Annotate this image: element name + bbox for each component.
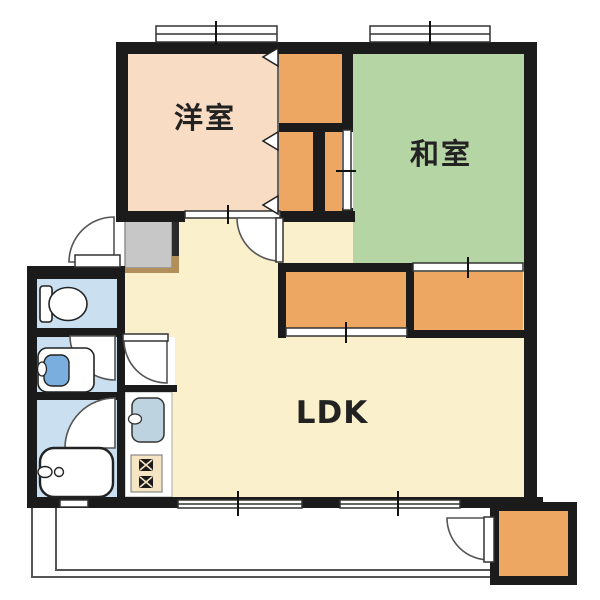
japanese-room-label: 和室 [410, 137, 472, 171]
entrance-area [125, 219, 179, 273]
oshiire-left [285, 272, 407, 328]
entrance-mat [125, 219, 172, 268]
stove-burner-icon [139, 459, 153, 471]
balcony-fence-inner [56, 508, 494, 570]
washbasin-bowl [44, 355, 69, 386]
kitchen-sink-icon [129, 398, 165, 442]
sliding-western-entry [185, 211, 280, 218]
storage-box [490, 502, 577, 585]
wall-western-bottom-left [116, 211, 185, 222]
wall-left-lower [27, 266, 37, 508]
balcony-fence-outer [32, 506, 494, 577]
wall-oshiire-middle [406, 263, 414, 338]
hall-door-leaf [123, 334, 168, 341]
wall-left-upper [116, 42, 128, 217]
toilet-bowl [49, 288, 87, 321]
wall-kitchen-top [122, 385, 177, 392]
washbasin-tap [38, 362, 47, 376]
wall-closet-middle [313, 132, 325, 211]
toilet-icon [40, 286, 87, 322]
storage-door-leaf [484, 517, 494, 562]
western-room-door-leaf [276, 218, 283, 262]
front-door-leaf [75, 255, 120, 267]
wall-oshiire-bottom [406, 330, 524, 338]
storage-box-floor [499, 511, 568, 576]
oshiire-right [413, 272, 523, 330]
floor-plan-svg: 洋室 和室 LDK [0, 0, 600, 600]
washbasin-icon [38, 348, 95, 392]
wall-closet-divider [279, 123, 353, 132]
floor-plan: 洋室 和室 LDK [0, 0, 600, 600]
wall-right [524, 42, 537, 508]
entrance-step-horizontal [125, 268, 179, 273]
western-room-label: 洋室 [174, 101, 236, 135]
stove-icon [131, 455, 162, 492]
stove-burner-icon [139, 476, 153, 488]
storage-door-arc [447, 518, 489, 560]
bathtub-icon [38, 448, 113, 497]
wall-japanese-bottom [279, 263, 414, 272]
entrance-wall-stub [172, 222, 179, 258]
balcony-fence [32, 506, 494, 577]
wall-oshiire-left [278, 263, 286, 338]
closet-top [279, 54, 342, 123]
ldk-label: LDK [296, 395, 369, 431]
wall-top [116, 42, 537, 54]
wall-japanese-left-upper [342, 42, 353, 130]
closet-small-left [279, 132, 313, 211]
window-bathroom [60, 500, 88, 507]
kitchen-sink-tap [129, 414, 142, 424]
bathtub-drain [55, 468, 64, 477]
wall-toilet-top [27, 266, 125, 279]
bathtub-tap [38, 467, 52, 478]
